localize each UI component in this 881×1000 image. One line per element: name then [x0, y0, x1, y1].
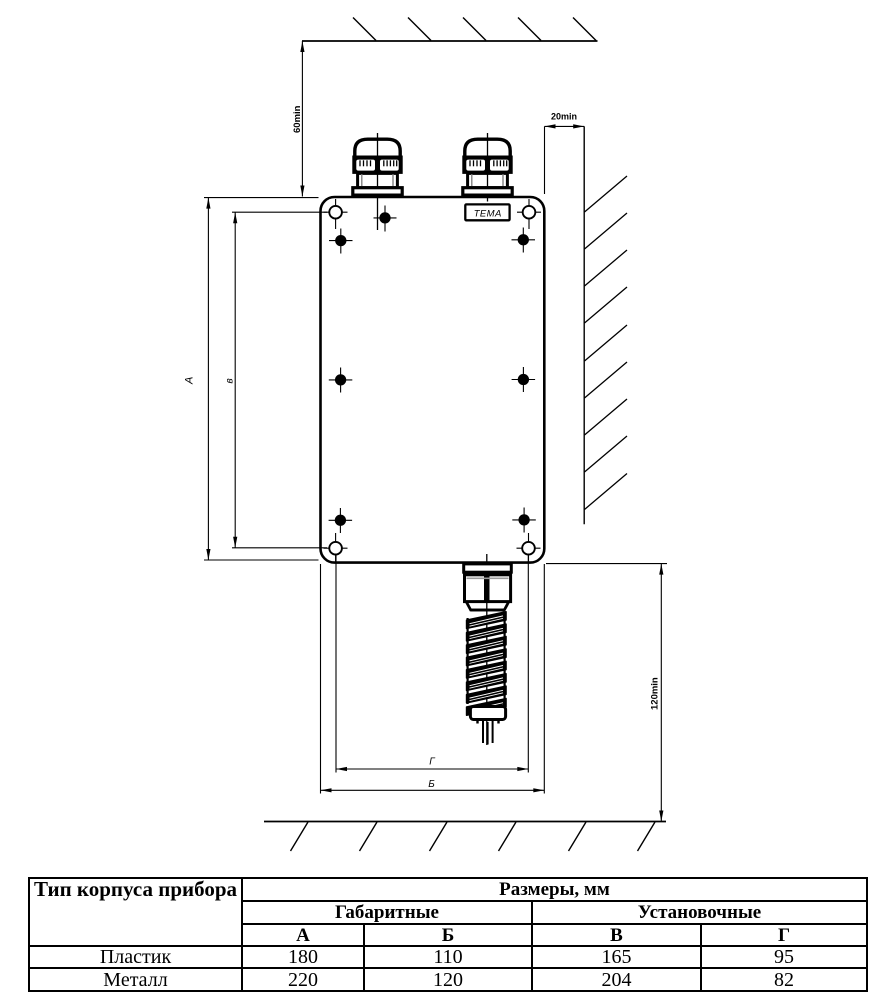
svg-text:Б: Б: [428, 779, 435, 790]
svg-text:TEMA: TEMA: [474, 208, 502, 219]
svg-text:Г: Г: [429, 757, 436, 768]
svg-text:А: А: [184, 377, 196, 385]
svg-text:60min: 60min: [292, 105, 303, 133]
svg-text:в: в: [225, 378, 236, 383]
svg-text:20min: 20min: [551, 112, 577, 122]
svg-text:120min: 120min: [650, 677, 661, 710]
